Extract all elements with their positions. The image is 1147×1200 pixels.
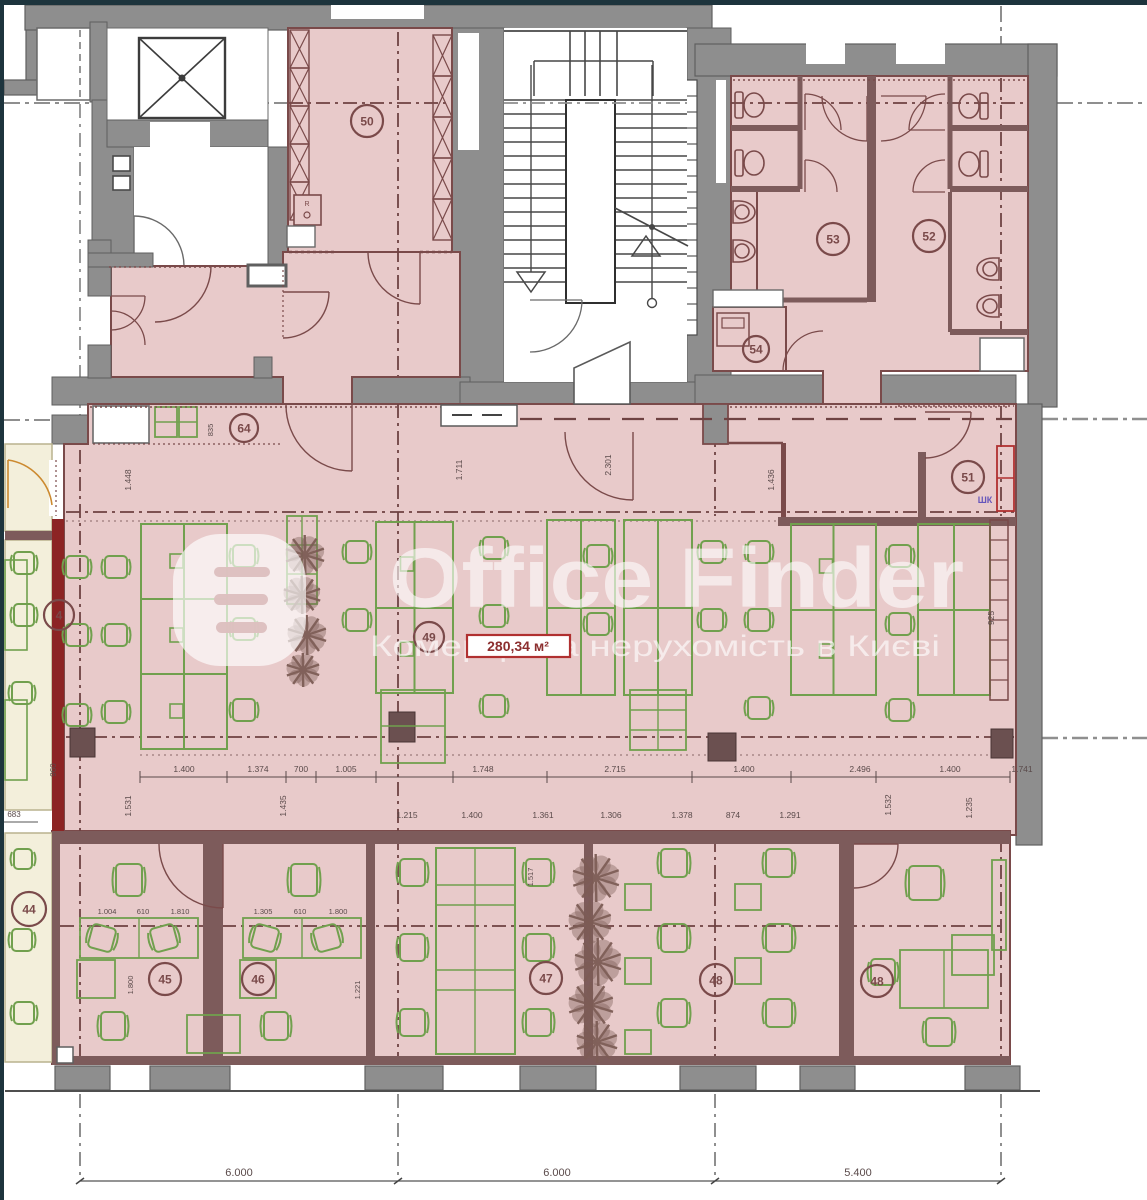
svg-text:51: 51 [961,471,975,485]
svg-text:1.004: 1.004 [98,907,117,916]
svg-text:1.378: 1.378 [671,810,693,820]
svg-text:280,34 м²: 280,34 м² [487,638,549,654]
svg-text:48: 48 [870,975,884,989]
svg-text:2.496: 2.496 [849,764,871,774]
svg-text:1.748: 1.748 [472,764,494,774]
svg-text:4: 4 [56,609,63,623]
svg-text:1.448: 1.448 [123,469,133,491]
svg-text:6.000: 6.000 [543,1167,571,1179]
svg-text:1.305: 1.305 [254,907,273,916]
svg-text:1.361: 1.361 [532,810,554,820]
svg-text:54: 54 [749,343,763,357]
svg-text:ШК: ШК [978,495,993,505]
svg-text:1.221: 1.221 [353,981,362,1000]
svg-text:1.741: 1.741 [1011,764,1033,774]
svg-text:1.800: 1.800 [329,907,348,916]
svg-text:Комерційна нерухомість в Києві: Комерційна нерухомість в Києві [370,630,940,663]
svg-text:960: 960 [49,763,58,777]
svg-text:1.306: 1.306 [600,810,622,820]
svg-text:1.517: 1.517 [526,868,535,887]
svg-text:2.301: 2.301 [603,454,613,476]
svg-text:6.000: 6.000 [225,1167,253,1179]
svg-text:1.532: 1.532 [883,794,893,816]
svg-text:1.436: 1.436 [766,469,776,491]
svg-text:700: 700 [294,764,308,774]
svg-text:1.374: 1.374 [247,764,269,774]
svg-text:1.400: 1.400 [733,764,755,774]
svg-text:1.400: 1.400 [939,764,961,774]
svg-text:1.435: 1.435 [278,795,288,817]
svg-text:Office Finder: Office Finder [389,531,964,625]
svg-text:R: R [304,201,309,208]
svg-text:1.215: 1.215 [396,810,418,820]
svg-text:1.531: 1.531 [123,795,133,817]
svg-text:48: 48 [709,974,723,988]
svg-text:1.291: 1.291 [779,810,801,820]
svg-text:2.715: 2.715 [604,764,626,774]
svg-text:835: 835 [206,424,215,437]
svg-text:45: 45 [158,973,172,987]
svg-text:1.800: 1.800 [126,976,135,995]
svg-text:1.810: 1.810 [171,907,190,916]
svg-text:46: 46 [251,973,265,987]
svg-text:925: 925 [986,611,996,625]
svg-text:44: 44 [22,903,36,917]
svg-text:874: 874 [726,810,740,820]
svg-text:50: 50 [360,115,374,129]
svg-text:1.400: 1.400 [461,810,483,820]
svg-text:52: 52 [922,230,936,244]
svg-text:610: 610 [137,907,150,916]
svg-text:1.235: 1.235 [964,797,974,819]
svg-text:53: 53 [826,233,840,247]
svg-text:64: 64 [237,422,251,436]
svg-text:610: 610 [294,907,307,916]
svg-text:683: 683 [7,810,21,819]
svg-text:5.400: 5.400 [844,1167,872,1179]
svg-text:47: 47 [539,972,553,986]
svg-text:1.400: 1.400 [173,764,195,774]
svg-text:1.711: 1.711 [454,459,464,480]
svg-text:1.005: 1.005 [335,764,357,774]
